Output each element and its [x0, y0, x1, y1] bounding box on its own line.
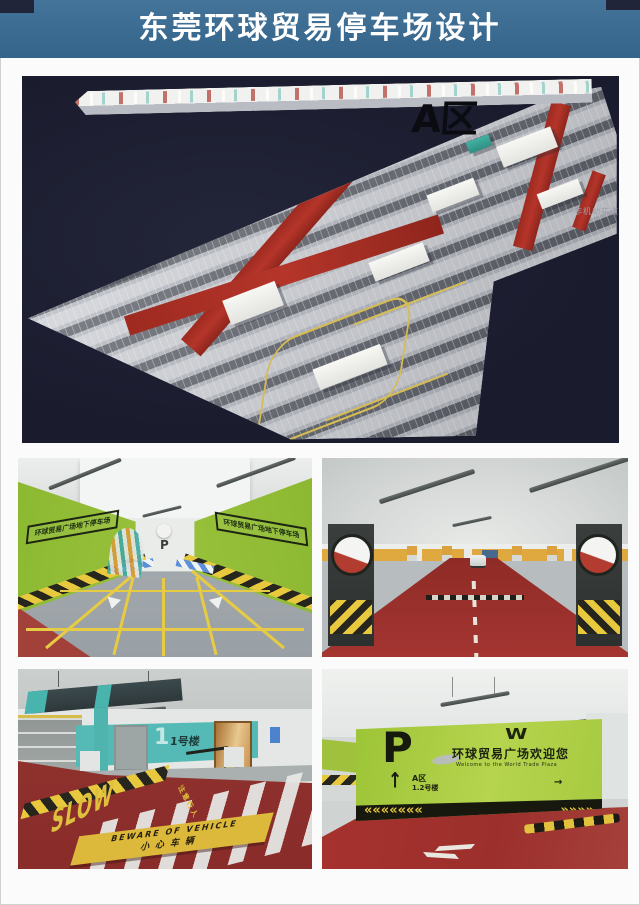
welcome-text-cn: 环球贸易广场欢迎您 [452, 745, 569, 762]
plan-upper-deck-stalls [75, 81, 592, 106]
gray-door [114, 725, 148, 771]
convex-mirror-left [331, 534, 373, 576]
road-crossing-mark [426, 595, 524, 600]
building-numeral: 1 [154, 725, 169, 750]
sign-rod [58, 671, 59, 687]
building-12-label: 1.2号楼 [412, 783, 438, 793]
photo-red-road-render [322, 458, 628, 657]
up-arrow: ↑ [388, 769, 402, 794]
poster-page: 东莞环球贸易停车场设计 A区 非机动车道 [0, 0, 640, 905]
plan-upper-deck-strip [75, 79, 592, 116]
trade-plaza-logo: W [505, 725, 527, 743]
plan-building [235, 168, 287, 201]
photo-welcome-wall-render: P W 环球贸易广场欢迎您 Welcome to the World Trade… [322, 669, 628, 869]
blue-sign [270, 727, 280, 743]
lane-line [26, 628, 304, 631]
green-welcome-wall: P W 环球贸易广场欢迎您 Welcome to the World Trade… [356, 719, 602, 821]
parking-sign-disc [157, 524, 171, 538]
photo-building1-render: 1 1号楼 SLOW 注意行人 BEWARE OF VEHICLE 小心车辆 [18, 669, 312, 869]
parking-p-label: P [160, 538, 169, 552]
plan-overview-render: A区 非机动车道 [22, 76, 619, 443]
distant-car [470, 555, 486, 568]
plan-deck [22, 76, 619, 443]
page-title: 东莞环球贸易停车场设计 [0, 0, 640, 58]
corridor-green-wall [322, 739, 356, 773]
corner-mark-right [606, 0, 640, 10]
plan-zone-a-label: A区 [410, 88, 479, 143]
plan-nonmotor-lane-label: 非机动车道 [574, 206, 619, 217]
sign-teal-cap [25, 690, 48, 714]
welcome-text-en: Welcome to the World Trade Plaza [456, 762, 557, 768]
hazard-stripe-column-right [578, 600, 620, 634]
lane-line [60, 590, 270, 592]
building1-wall-sign: 1号楼 [169, 733, 200, 749]
convex-mirror-right [577, 534, 619, 576]
corner-mark-left [0, 0, 34, 13]
header-banner: 东莞环球贸易停车场设计 [0, 0, 640, 58]
lane-line [162, 578, 165, 656]
right-arrow: → [554, 777, 562, 788]
parking-p-label: P [382, 727, 413, 769]
light-rod [452, 677, 453, 697]
hazard-stripe-column-left [330, 600, 372, 634]
photo-entrance-render: P 环球贸易广场地下停车场 环球贸易广场地下停车场 [18, 458, 312, 657]
sign-teal-cap [94, 684, 111, 708]
